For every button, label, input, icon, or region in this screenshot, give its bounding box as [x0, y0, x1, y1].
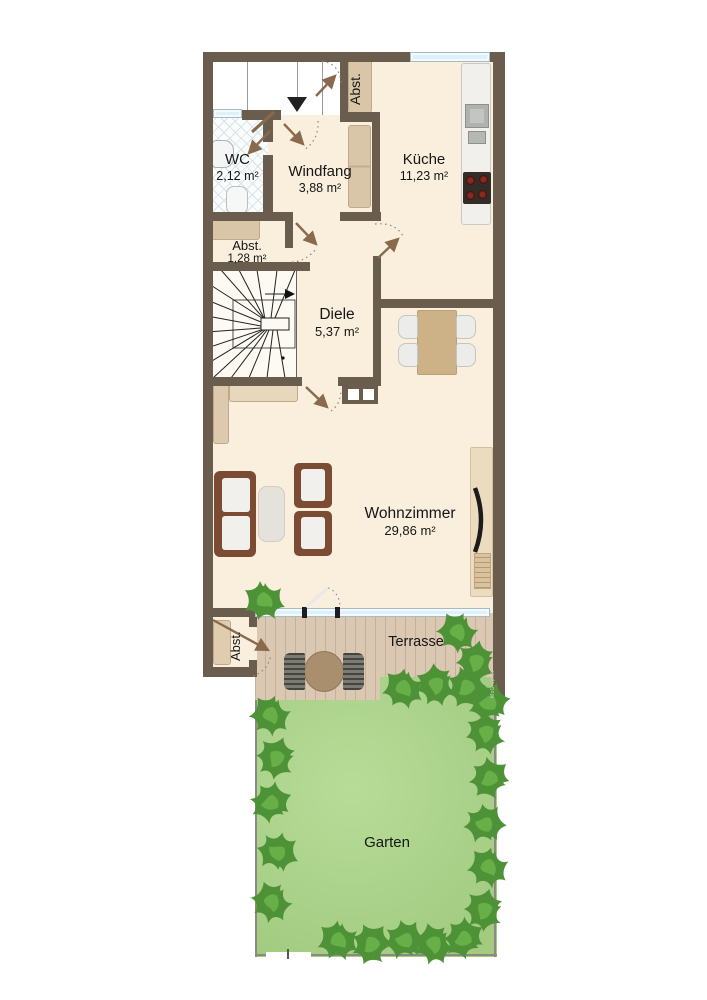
room-label-windfang: Windfang 3,88 m²: [268, 163, 372, 195]
floor-plan: WC 2,12 m² Windfang 3,88 m² Abst. Küche …: [0, 0, 707, 1000]
room-area: 29,86 m²: [335, 523, 485, 538]
plant-icon: [255, 831, 298, 873]
room-label-garten: Garten: [342, 834, 432, 852]
room-name: Wohnzimmer: [335, 505, 485, 523]
room-label-wc: WC 2,12 m²: [205, 151, 270, 183]
room-area: 5,37 m²: [292, 324, 382, 339]
plant-icon: [460, 707, 514, 761]
room-name: Küche: [374, 151, 474, 169]
plant-icon: [245, 581, 285, 620]
room-area: 1,28 m²: [208, 253, 286, 267]
room-label-wohnzimmer: Wohnzimmer 29,86 m²: [335, 505, 485, 539]
plant-icon: [464, 754, 514, 805]
room-label-kueche: Küche 11,23 m²: [374, 151, 474, 183]
plant-icon: [245, 689, 298, 741]
room-area: 2,12 m²: [205, 169, 270, 184]
room-name: Diele: [292, 306, 382, 324]
room-label-abst-mid: Abst. 1,28 m²: [208, 238, 286, 267]
room-area: 3,88 m²: [268, 181, 372, 196]
room-label-diele: Diele 5,37 m²: [292, 306, 382, 340]
room-label-abst-top: Abst.: [347, 66, 365, 112]
plant-icon: [316, 918, 362, 963]
room-name: Terrasse: [372, 634, 460, 651]
plant-icon: [244, 875, 300, 931]
plant-icon: [243, 775, 299, 831]
plant-icon: [254, 736, 299, 782]
room-label-abst-unten: Abst.: [228, 620, 245, 672]
room-name: WC: [205, 151, 270, 169]
plant-icon: [458, 798, 511, 850]
room-name: Garten: [342, 834, 432, 852]
room-label-terrasse: Terrasse: [372, 634, 460, 651]
watermark-text: MoGraphik: [490, 660, 496, 698]
room-name: Windfang: [268, 163, 372, 181]
plant-icon: [464, 842, 515, 892]
room-area: 11,23 m²: [374, 169, 474, 184]
room-name: Abst.: [208, 238, 286, 253]
